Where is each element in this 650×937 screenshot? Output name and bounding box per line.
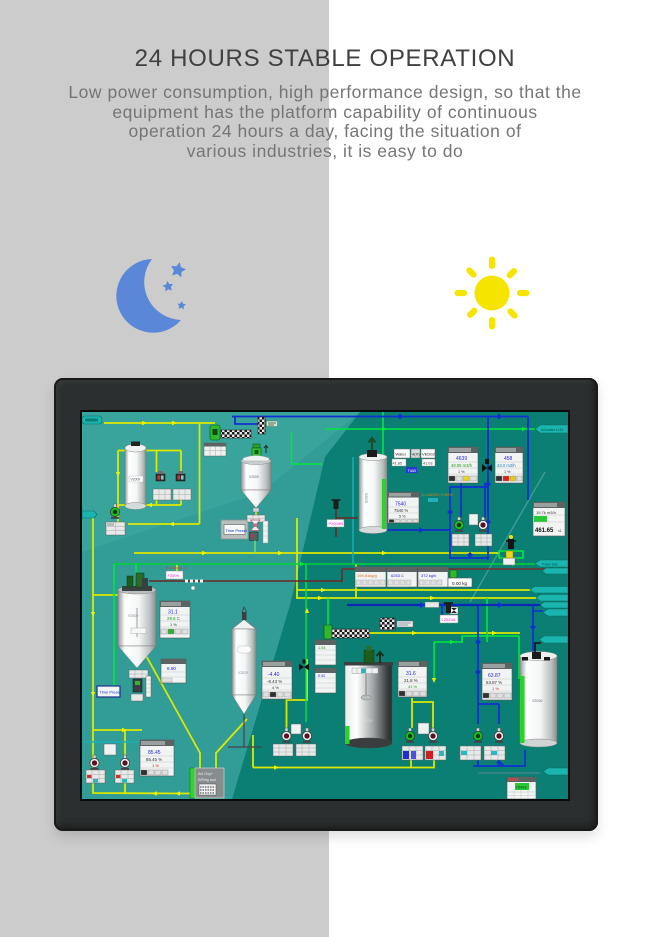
svg-text:5 %: 5 %	[399, 515, 406, 519]
svg-text:VED02: VED02	[422, 452, 435, 457]
svg-text:6253 C: 6253 C	[391, 573, 404, 578]
svg-text:Power side: Power side	[542, 563, 558, 567]
svg-text:79433: 79433	[516, 785, 528, 790]
svg-text:hot water f.L10: hot water f.L10	[541, 428, 564, 432]
svg-text:461.65: 461.65	[535, 528, 554, 534]
svg-text:F2009: F2009	[168, 573, 180, 578]
svg-text:458: 458	[504, 456, 513, 462]
svg-text:19.7k m3/h: 19.7k m3/h	[536, 510, 556, 515]
svg-text:1 %: 1 %	[170, 622, 177, 627]
svg-text:-4.40: -4.40	[268, 672, 280, 678]
svg-text:199.81kg/g: 199.81kg/g	[357, 573, 377, 578]
svg-text:8.90: 8.90	[167, 666, 176, 671]
svg-text:31.1: 31.1	[168, 610, 178, 616]
svg-text:29.6 C: 29.6 C	[167, 616, 180, 621]
svg-text:Water: Water	[396, 452, 407, 457]
svg-text:Time Preset: Time Preset	[100, 690, 122, 695]
svg-text:41.85: 41.85	[393, 462, 403, 466]
svg-text:1 %: 1 %	[458, 470, 465, 474]
svg-text:43.0 m3/h: 43.0 m3/h	[497, 463, 516, 468]
svg-text:-8.43 %: -8.43 %	[267, 679, 282, 684]
svg-text:7540 %: 7540 %	[394, 508, 408, 513]
svg-text:4(X): 4(X)	[412, 452, 420, 457]
svg-text:V2029: V2029	[362, 719, 372, 723]
svg-text:V2009: V2009	[128, 614, 138, 618]
svg-text:4639: 4639	[456, 456, 467, 462]
svg-text:Time Preset: Time Preset	[226, 528, 248, 533]
svg-text:85.45 %: 85.45 %	[146, 757, 162, 762]
svg-text:48.05 m3/h: 48.05 m3/h	[451, 463, 473, 468]
svg-text:V2029: V2029	[238, 671, 248, 675]
svg-text:Ant Oxy+: Ant Oxy+	[198, 772, 213, 776]
svg-text:1 %: 1 %	[152, 763, 159, 768]
svg-text:0.92: 0.92	[318, 674, 325, 678]
svg-text:V2030: V2030	[532, 699, 542, 703]
svg-text:7540: 7540	[395, 502, 406, 508]
svg-text:V2009: V2009	[364, 493, 368, 503]
svg-text:V2009: V2009	[249, 475, 259, 479]
svg-text:x1: x1	[558, 529, 562, 533]
svg-text:41.03: 41.03	[423, 462, 433, 466]
svg-text:TIAB: TIAB	[408, 469, 417, 473]
svg-text:0.00 kg: 0.00 kg	[452, 581, 468, 586]
svg-text:1 %: 1 %	[492, 686, 499, 691]
svg-text:63.87: 63.87	[488, 673, 501, 679]
svg-text:41 %: 41 %	[408, 684, 418, 689]
svg-text:85.45: 85.45	[148, 750, 161, 756]
svg-text:4 %: 4 %	[272, 685, 279, 690]
svg-text:P2009N: P2009N	[329, 521, 344, 526]
svg-text:V2009: V2009	[131, 478, 141, 482]
svg-text:To LIAB09C1 PCB098: To LIAB09C1 PCB098	[421, 493, 453, 497]
svg-text:31.6: 31.6	[406, 671, 416, 677]
svg-text:S/Ring and: S/Ring and	[198, 778, 216, 782]
svg-text:L2029A: L2029A	[442, 617, 456, 622]
svg-text:1 %: 1 %	[504, 470, 511, 474]
svg-text:1.04: 1.04	[318, 646, 325, 650]
svg-text:372 kg/h: 372 kg/h	[421, 573, 436, 578]
svg-text:21.8 %: 21.8 %	[404, 678, 418, 683]
svg-text:63.87 %: 63.87 %	[486, 680, 502, 685]
